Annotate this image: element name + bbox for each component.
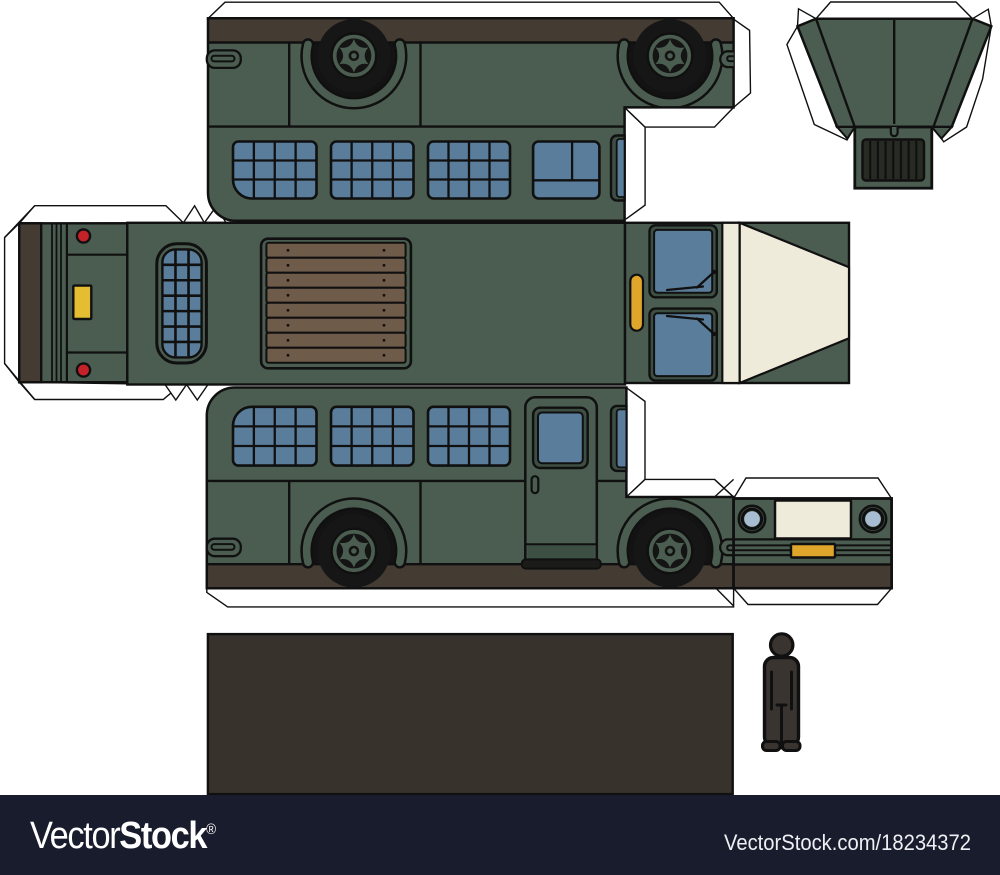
svg-text:VectorStock.com/18234372: VectorStock.com/18234372 [724,830,971,855]
svg-text:VectorStock®: VectorStock® [30,813,217,856]
